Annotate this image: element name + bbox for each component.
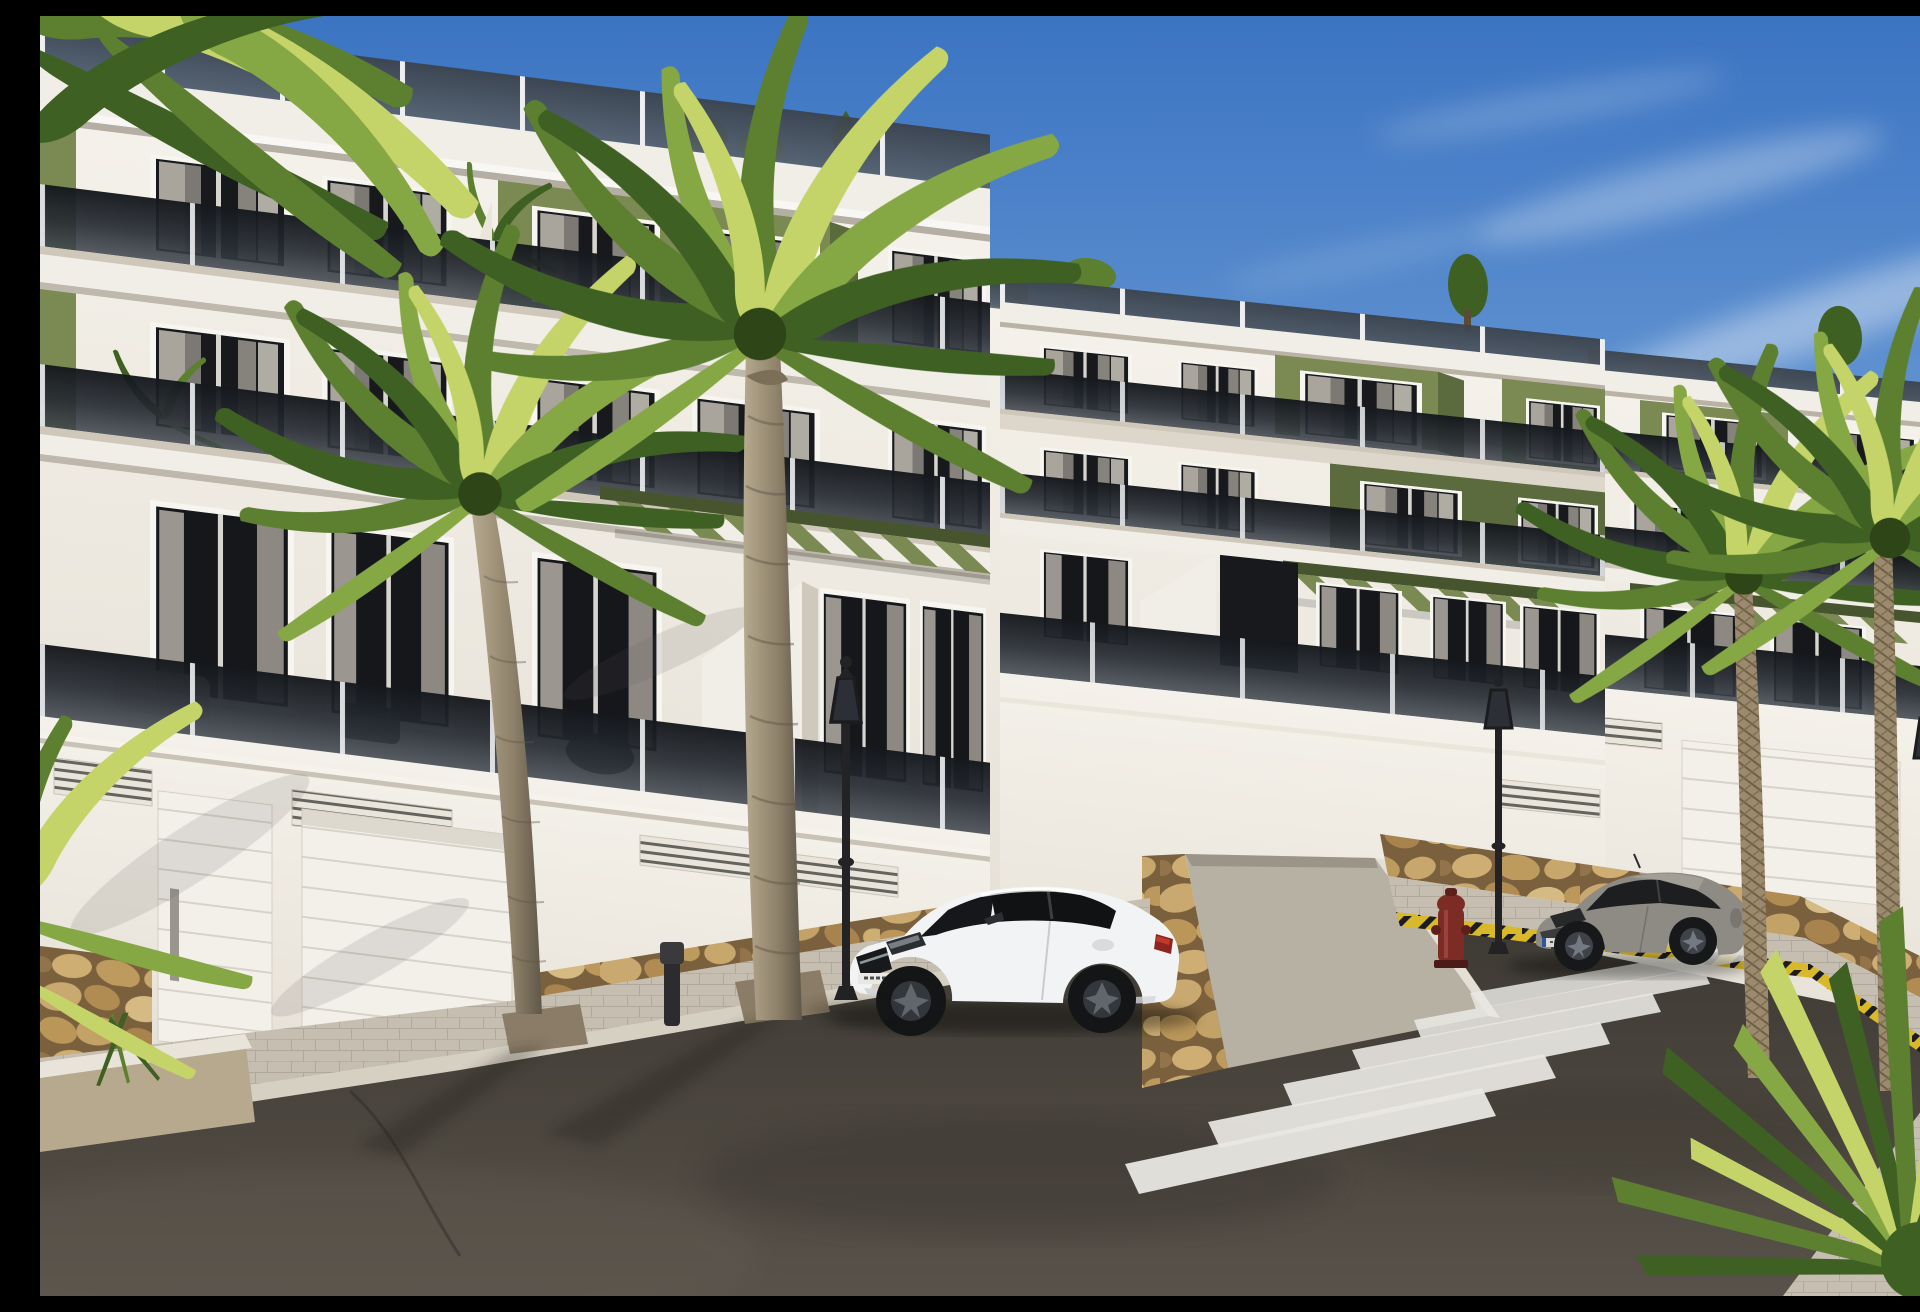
wheel (1554, 921, 1604, 971)
wheel (1669, 917, 1717, 965)
wheel (876, 966, 946, 1036)
vent-grille (1600, 717, 1662, 749)
wheel (1068, 965, 1136, 1033)
architectural-render (40, 16, 1920, 1296)
render-canvas (40, 16, 1920, 1296)
